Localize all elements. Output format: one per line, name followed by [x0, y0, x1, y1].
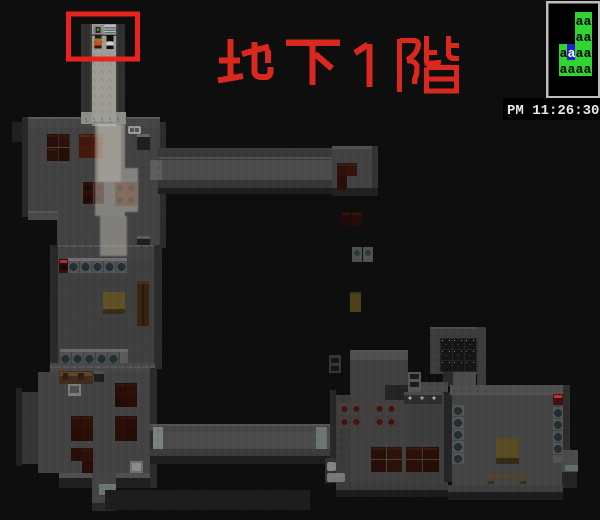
svg-text:a: a — [560, 62, 568, 77]
svg-text:a: a — [568, 62, 576, 77]
svg-text:a: a — [584, 46, 592, 61]
svg-text:a: a — [576, 46, 584, 61]
svg-text:a: a — [560, 46, 568, 61]
svg-text:PM 11:26:30: PM 11:26:30 — [507, 103, 599, 119]
svg-text:a: a — [576, 14, 584, 29]
svg-text:a: a — [568, 46, 576, 61]
svg-text:a: a — [576, 62, 584, 77]
svg-text:a: a — [584, 14, 592, 29]
svg-text:a: a — [584, 62, 592, 77]
svg-text:a: a — [584, 30, 592, 45]
svg-text:a: a — [576, 30, 584, 45]
